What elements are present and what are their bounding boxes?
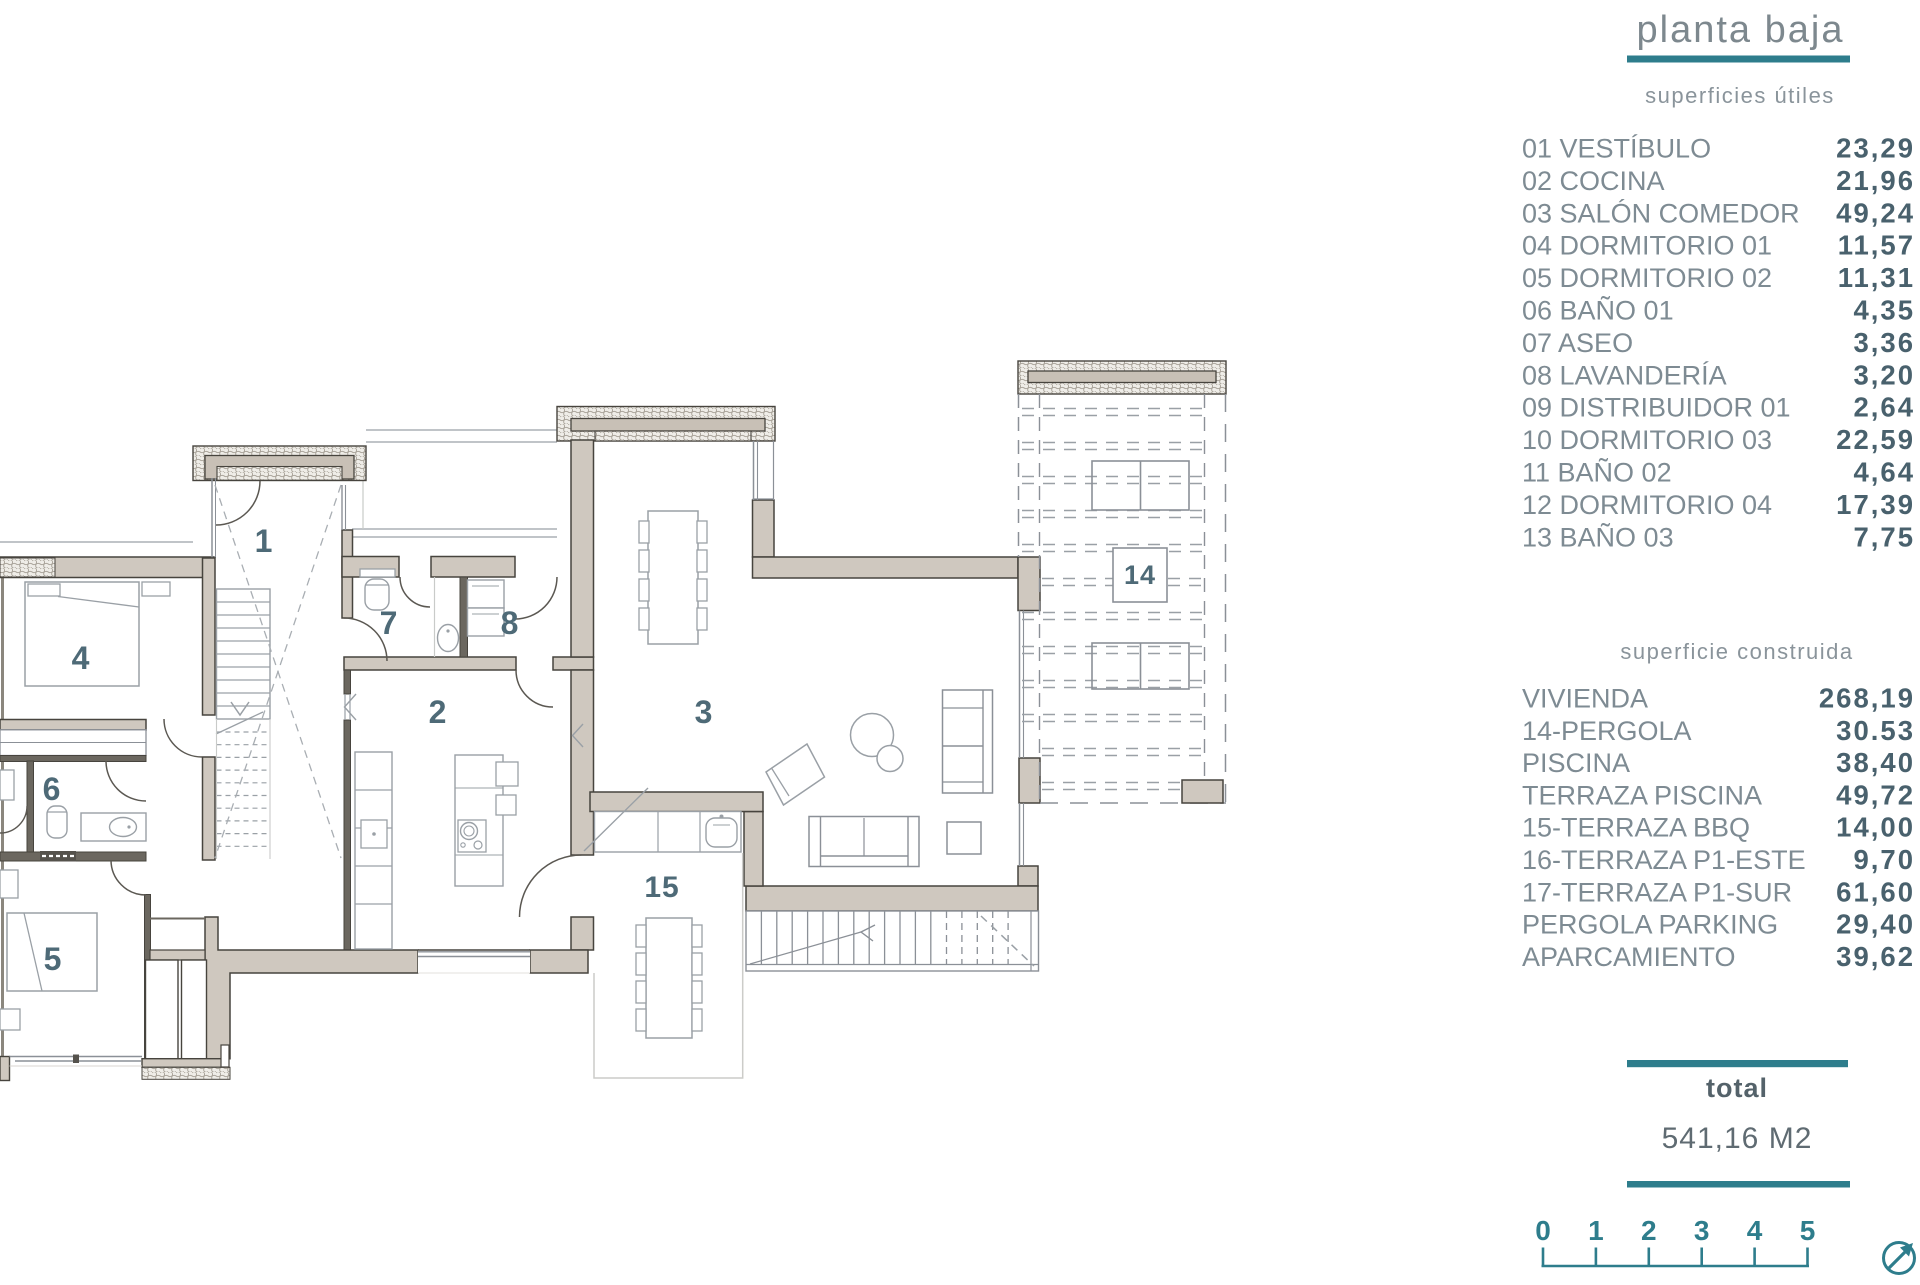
svg-text:11,57: 11,57	[1838, 230, 1915, 261]
svg-text:4,64: 4,64	[1853, 457, 1915, 488]
svg-text:14-PERGOLA: 14-PERGOLA	[1522, 716, 1692, 746]
svg-text:08 LAVANDERÍA: 08 LAVANDERÍA	[1522, 360, 1727, 390]
svg-text:superficie construida: superficie construida	[1620, 639, 1853, 664]
svg-text:15-TERRAZA BBQ: 15-TERRAZA BBQ	[1522, 813, 1750, 843]
svg-text:7,75: 7,75	[1853, 521, 1915, 552]
svg-text:4,35: 4,35	[1853, 295, 1915, 326]
svg-text:23,29: 23,29	[1836, 133, 1915, 164]
svg-text:8: 8	[501, 605, 520, 641]
svg-text:49,72: 49,72	[1836, 779, 1915, 810]
svg-text:total: total	[1706, 1073, 1768, 1103]
svg-text:4: 4	[1747, 1215, 1763, 1246]
svg-text:29,40: 29,40	[1836, 909, 1915, 940]
svg-text:22,59: 22,59	[1836, 424, 1915, 455]
svg-text:14: 14	[1124, 560, 1156, 590]
svg-text:21,96: 21,96	[1836, 165, 1915, 196]
svg-text:268,19: 268,19	[1819, 683, 1915, 714]
svg-text:11 BAÑO 02: 11 BAÑO 02	[1522, 457, 1672, 488]
svg-text:11,31: 11,31	[1838, 262, 1915, 293]
svg-text:0: 0	[1535, 1215, 1551, 1246]
svg-text:VIVIENDA: VIVIENDA	[1522, 684, 1648, 714]
svg-text:APARCAMIENTO: APARCAMIENTO	[1522, 942, 1736, 972]
svg-text:7: 7	[380, 605, 399, 641]
svg-text:01 VESTÍBULO: 01 VESTÍBULO	[1522, 134, 1711, 164]
svg-text:04 DORMITORIO 01: 04 DORMITORIO 01	[1522, 231, 1772, 261]
svg-text:12 DORMITORIO 04: 12 DORMITORIO 04	[1522, 490, 1772, 520]
svg-text:3,20: 3,20	[1853, 359, 1915, 390]
svg-text:1: 1	[1588, 1215, 1604, 1246]
svg-text:10 DORMITORIO 03: 10 DORMITORIO 03	[1522, 425, 1772, 455]
svg-text:PERGOLA PARKING: PERGOLA PARKING	[1522, 910, 1778, 940]
svg-text:39,62: 39,62	[1836, 941, 1915, 972]
svg-text:06 BAÑO 01: 06 BAÑO 01	[1522, 295, 1674, 326]
svg-text:09 DISTRIBUIDOR 01: 09 DISTRIBUIDOR 01	[1522, 393, 1791, 423]
svg-text:5: 5	[44, 941, 63, 977]
svg-text:38,40: 38,40	[1836, 747, 1915, 778]
svg-text:1: 1	[255, 523, 274, 559]
svg-text:07 ASEO: 07 ASEO	[1522, 328, 1633, 358]
svg-text:02 COCINA: 02 COCINA	[1522, 166, 1665, 196]
svg-text:16-TERRAZA P1-ESTE: 16-TERRAZA P1-ESTE	[1522, 845, 1806, 875]
svg-text:3: 3	[695, 694, 714, 730]
svg-text:5: 5	[1800, 1215, 1816, 1246]
svg-text:05 DORMITORIO 02: 05 DORMITORIO 02	[1522, 263, 1772, 293]
svg-text:2: 2	[1641, 1215, 1657, 1246]
svg-text:PISCINA: PISCINA	[1522, 748, 1630, 778]
svg-text:13 BAÑO 03: 13 BAÑO 03	[1522, 521, 1674, 552]
svg-text:17-TERRAZA P1-SUR: 17-TERRAZA P1-SUR	[1522, 877, 1792, 907]
svg-text:9,70: 9,70	[1853, 844, 1915, 875]
svg-text:3,36: 3,36	[1853, 327, 1915, 358]
svg-text:4: 4	[72, 640, 91, 676]
svg-text:TERRAZA PISCINA: TERRAZA PISCINA	[1522, 780, 1762, 810]
svg-text:541,16 M2: 541,16 M2	[1662, 1122, 1813, 1155]
svg-text:6: 6	[43, 771, 62, 807]
svg-text:2: 2	[429, 694, 448, 730]
svg-text:14,00: 14,00	[1836, 812, 1915, 843]
svg-text:planta baja: planta baja	[1637, 9, 1845, 51]
svg-text:30.53: 30.53	[1836, 715, 1915, 746]
svg-text:3: 3	[1694, 1215, 1710, 1246]
svg-text:49,24: 49,24	[1836, 197, 1915, 228]
svg-text:17,39: 17,39	[1836, 489, 1915, 520]
svg-text:superficies útiles: superficies útiles	[1645, 83, 1835, 108]
svg-text:15: 15	[644, 871, 679, 904]
svg-text:2,64: 2,64	[1853, 392, 1915, 423]
svg-text:03 SALÓN COMEDOR: 03 SALÓN COMEDOR	[1522, 197, 1800, 228]
svg-text:61,60: 61,60	[1836, 876, 1915, 907]
